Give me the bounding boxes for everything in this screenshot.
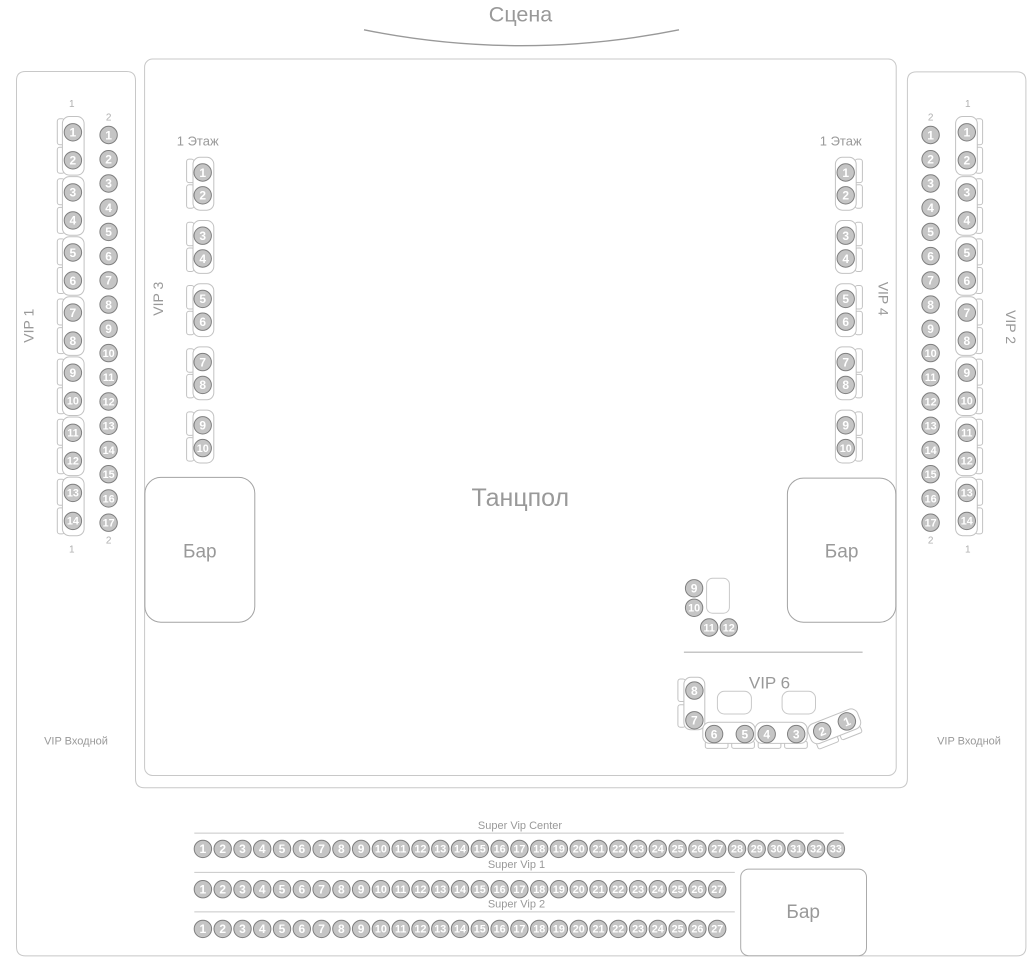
- svg-text:1 Этаж: 1 Этаж: [820, 134, 862, 149]
- svg-text:19: 19: [553, 844, 565, 856]
- svg-text:14: 14: [103, 445, 115, 457]
- svg-text:Бар: Бар: [825, 542, 859, 563]
- svg-text:20: 20: [573, 884, 585, 896]
- svg-text:33: 33: [830, 844, 842, 856]
- svg-text:6: 6: [199, 315, 206, 329]
- svg-text:6: 6: [842, 315, 849, 329]
- svg-text:8: 8: [338, 922, 345, 936]
- svg-text:2: 2: [70, 154, 77, 168]
- svg-text:13: 13: [961, 488, 973, 500]
- svg-text:24: 24: [652, 884, 664, 896]
- svg-text:1: 1: [105, 128, 112, 142]
- svg-text:16: 16: [103, 493, 115, 505]
- svg-text:1: 1: [69, 545, 75, 556]
- svg-text:8: 8: [338, 883, 345, 897]
- svg-text:16: 16: [494, 844, 506, 856]
- svg-text:9: 9: [70, 366, 77, 380]
- svg-text:13: 13: [67, 488, 79, 500]
- svg-text:27: 27: [711, 844, 723, 856]
- svg-text:14: 14: [454, 844, 466, 856]
- svg-text:1: 1: [842, 166, 849, 180]
- svg-text:10: 10: [197, 443, 209, 455]
- svg-text:5: 5: [279, 883, 286, 897]
- svg-text:13: 13: [925, 421, 937, 433]
- svg-text:15: 15: [103, 469, 115, 481]
- svg-text:10: 10: [375, 884, 387, 896]
- svg-text:4: 4: [105, 201, 112, 215]
- svg-text:9: 9: [358, 883, 365, 897]
- svg-text:6: 6: [105, 249, 112, 263]
- svg-text:18: 18: [533, 924, 545, 936]
- svg-text:4: 4: [70, 214, 77, 228]
- svg-text:3: 3: [70, 186, 77, 200]
- svg-text:24: 24: [652, 924, 664, 936]
- svg-text:7: 7: [963, 306, 970, 320]
- svg-text:27: 27: [711, 884, 723, 896]
- svg-text:6: 6: [70, 274, 77, 288]
- svg-text:10: 10: [688, 603, 700, 615]
- svg-text:2: 2: [219, 842, 226, 856]
- svg-text:25: 25: [672, 924, 684, 936]
- svg-text:Super Vip Center: Super Vip Center: [478, 820, 563, 832]
- svg-text:7: 7: [199, 355, 206, 369]
- svg-text:4: 4: [259, 922, 266, 936]
- svg-text:22: 22: [612, 844, 624, 856]
- svg-text:5: 5: [279, 842, 286, 856]
- svg-text:3: 3: [963, 186, 970, 200]
- svg-text:16: 16: [494, 884, 506, 896]
- svg-text:15: 15: [925, 469, 937, 481]
- svg-text:3: 3: [199, 229, 206, 243]
- svg-text:5: 5: [927, 225, 934, 239]
- svg-text:30: 30: [770, 844, 782, 856]
- svg-text:22: 22: [612, 884, 624, 896]
- svg-text:VIP 4: VIP 4: [876, 282, 892, 316]
- svg-text:17: 17: [103, 518, 115, 530]
- svg-text:9: 9: [691, 582, 698, 596]
- svg-text:8: 8: [338, 842, 345, 856]
- svg-text:8: 8: [927, 298, 934, 312]
- svg-text:26: 26: [691, 844, 703, 856]
- svg-text:5: 5: [842, 292, 849, 306]
- svg-text:7: 7: [318, 883, 325, 897]
- svg-text:1: 1: [965, 545, 971, 556]
- svg-text:Сцена: Сцена: [489, 3, 552, 27]
- svg-text:3: 3: [927, 177, 934, 191]
- svg-text:11: 11: [395, 924, 406, 936]
- svg-text:6: 6: [711, 727, 718, 741]
- svg-text:31: 31: [790, 844, 802, 856]
- svg-text:10: 10: [375, 844, 387, 856]
- svg-text:5: 5: [199, 292, 206, 306]
- svg-text:16: 16: [494, 924, 506, 936]
- svg-text:1: 1: [69, 99, 75, 110]
- svg-text:14: 14: [454, 884, 466, 896]
- svg-text:13: 13: [434, 884, 446, 896]
- svg-text:7: 7: [691, 714, 698, 728]
- svg-text:2: 2: [842, 189, 849, 203]
- svg-text:5: 5: [963, 246, 970, 260]
- svg-text:15: 15: [474, 884, 486, 896]
- svg-text:16: 16: [925, 493, 937, 505]
- svg-text:23: 23: [632, 924, 644, 936]
- svg-text:9: 9: [358, 842, 365, 856]
- svg-text:2: 2: [105, 153, 112, 167]
- svg-text:21: 21: [592, 844, 604, 856]
- svg-text:3: 3: [842, 229, 849, 243]
- svg-text:18: 18: [533, 884, 545, 896]
- svg-text:12: 12: [723, 622, 735, 634]
- svg-text:3: 3: [239, 922, 246, 936]
- svg-text:VIP Входной: VIP Входной: [937, 736, 1001, 748]
- svg-text:10: 10: [840, 443, 852, 455]
- svg-text:10: 10: [67, 396, 79, 408]
- svg-text:7: 7: [318, 922, 325, 936]
- svg-text:12: 12: [414, 844, 426, 856]
- svg-text:14: 14: [67, 516, 79, 528]
- svg-text:14: 14: [925, 445, 937, 457]
- svg-text:13: 13: [434, 844, 446, 856]
- svg-text:29: 29: [751, 844, 763, 856]
- svg-text:23: 23: [632, 884, 644, 896]
- svg-text:9: 9: [199, 419, 206, 433]
- svg-text:11: 11: [67, 428, 78, 440]
- svg-text:28: 28: [731, 844, 743, 856]
- svg-text:7: 7: [70, 306, 77, 320]
- svg-text:15: 15: [474, 924, 486, 936]
- svg-text:8: 8: [70, 334, 77, 348]
- svg-text:2: 2: [106, 536, 112, 547]
- svg-text:2: 2: [199, 189, 206, 203]
- svg-text:Бар: Бар: [786, 902, 820, 923]
- svg-text:11: 11: [103, 372, 114, 384]
- svg-text:4: 4: [763, 727, 770, 741]
- svg-text:8: 8: [963, 334, 970, 348]
- svg-text:12: 12: [103, 396, 115, 408]
- svg-text:4: 4: [259, 883, 266, 897]
- svg-text:23: 23: [632, 844, 644, 856]
- svg-text:4: 4: [259, 842, 266, 856]
- svg-text:VIP 1: VIP 1: [21, 308, 37, 342]
- svg-text:6: 6: [298, 883, 305, 897]
- svg-text:1: 1: [963, 126, 970, 140]
- svg-text:3: 3: [793, 727, 800, 741]
- svg-text:11: 11: [395, 844, 406, 856]
- svg-text:1: 1: [200, 883, 207, 897]
- svg-text:1 Этаж: 1 Этаж: [177, 134, 219, 149]
- svg-text:6: 6: [298, 842, 305, 856]
- svg-text:19: 19: [553, 884, 565, 896]
- svg-text:6: 6: [927, 249, 934, 263]
- svg-text:Танцпол: Танцпол: [471, 484, 569, 512]
- svg-text:Super Vip 1: Super Vip 1: [488, 859, 545, 871]
- svg-text:1: 1: [70, 126, 77, 140]
- svg-text:7: 7: [927, 274, 934, 288]
- svg-text:9: 9: [963, 366, 970, 380]
- svg-text:11: 11: [925, 372, 936, 384]
- svg-text:11: 11: [961, 428, 972, 440]
- svg-text:15: 15: [474, 844, 486, 856]
- svg-text:8: 8: [842, 378, 849, 392]
- svg-text:4: 4: [963, 214, 970, 228]
- svg-text:20: 20: [573, 844, 585, 856]
- svg-text:18: 18: [533, 844, 545, 856]
- svg-text:6: 6: [298, 922, 305, 936]
- svg-text:2: 2: [219, 922, 226, 936]
- svg-text:7: 7: [318, 842, 325, 856]
- svg-text:7: 7: [842, 355, 849, 369]
- svg-text:2: 2: [928, 536, 934, 547]
- svg-text:17: 17: [513, 844, 525, 856]
- svg-text:Бар: Бар: [183, 542, 217, 563]
- svg-text:2: 2: [928, 113, 934, 124]
- svg-text:21: 21: [592, 884, 604, 896]
- svg-text:1: 1: [200, 842, 207, 856]
- svg-text:12: 12: [414, 924, 426, 936]
- svg-text:7: 7: [105, 274, 112, 288]
- svg-text:3: 3: [105, 177, 112, 191]
- svg-text:VIP 2: VIP 2: [1003, 310, 1019, 344]
- svg-text:10: 10: [103, 348, 115, 360]
- svg-text:20: 20: [573, 924, 585, 936]
- svg-text:2: 2: [106, 113, 112, 124]
- svg-text:1: 1: [200, 922, 207, 936]
- svg-text:11: 11: [703, 622, 714, 634]
- svg-text:5: 5: [105, 225, 112, 239]
- svg-text:6: 6: [963, 274, 970, 288]
- svg-text:5: 5: [279, 922, 286, 936]
- svg-text:19: 19: [553, 924, 565, 936]
- svg-text:2: 2: [219, 883, 226, 897]
- svg-text:10: 10: [375, 924, 387, 936]
- svg-text:3: 3: [239, 883, 246, 897]
- svg-text:1: 1: [965, 99, 971, 110]
- svg-text:25: 25: [672, 844, 684, 856]
- svg-text:13: 13: [434, 924, 446, 936]
- svg-text:4: 4: [842, 252, 849, 266]
- svg-text:17: 17: [513, 884, 525, 896]
- svg-text:12: 12: [414, 884, 426, 896]
- svg-text:5: 5: [741, 727, 748, 741]
- svg-text:VIP Входной: VIP Входной: [44, 736, 108, 748]
- svg-text:8: 8: [105, 298, 112, 312]
- svg-text:12: 12: [961, 456, 973, 468]
- svg-text:12: 12: [925, 396, 937, 408]
- svg-text:Super Vip 2: Super Vip 2: [488, 899, 545, 911]
- svg-text:9: 9: [927, 322, 934, 336]
- svg-text:26: 26: [691, 884, 703, 896]
- svg-text:25: 25: [672, 884, 684, 896]
- svg-text:26: 26: [691, 924, 703, 936]
- svg-text:4: 4: [199, 252, 206, 266]
- svg-text:12: 12: [67, 456, 79, 468]
- svg-text:5: 5: [70, 246, 77, 260]
- svg-text:VIP 6: VIP 6: [749, 674, 790, 693]
- svg-text:3: 3: [239, 842, 246, 856]
- svg-text:VIP 3: VIP 3: [150, 281, 166, 315]
- svg-text:14: 14: [961, 516, 973, 528]
- svg-text:24: 24: [652, 844, 664, 856]
- svg-text:2: 2: [927, 153, 934, 167]
- svg-text:1: 1: [927, 128, 934, 142]
- svg-text:10: 10: [961, 396, 973, 408]
- svg-text:17: 17: [925, 518, 937, 530]
- svg-text:1: 1: [199, 166, 206, 180]
- svg-text:13: 13: [103, 421, 115, 433]
- svg-text:14: 14: [454, 924, 466, 936]
- svg-text:9: 9: [842, 419, 849, 433]
- svg-text:9: 9: [105, 322, 112, 336]
- svg-text:17: 17: [513, 924, 525, 936]
- svg-text:4: 4: [927, 201, 934, 215]
- svg-text:21: 21: [592, 924, 604, 936]
- svg-text:8: 8: [691, 684, 698, 698]
- svg-text:27: 27: [711, 924, 723, 936]
- svg-text:32: 32: [810, 844, 822, 856]
- svg-text:22: 22: [612, 924, 624, 936]
- svg-text:9: 9: [358, 922, 365, 936]
- svg-text:2: 2: [963, 154, 970, 168]
- svg-text:10: 10: [925, 348, 937, 360]
- svg-text:11: 11: [395, 884, 406, 896]
- svg-text:8: 8: [199, 378, 206, 392]
